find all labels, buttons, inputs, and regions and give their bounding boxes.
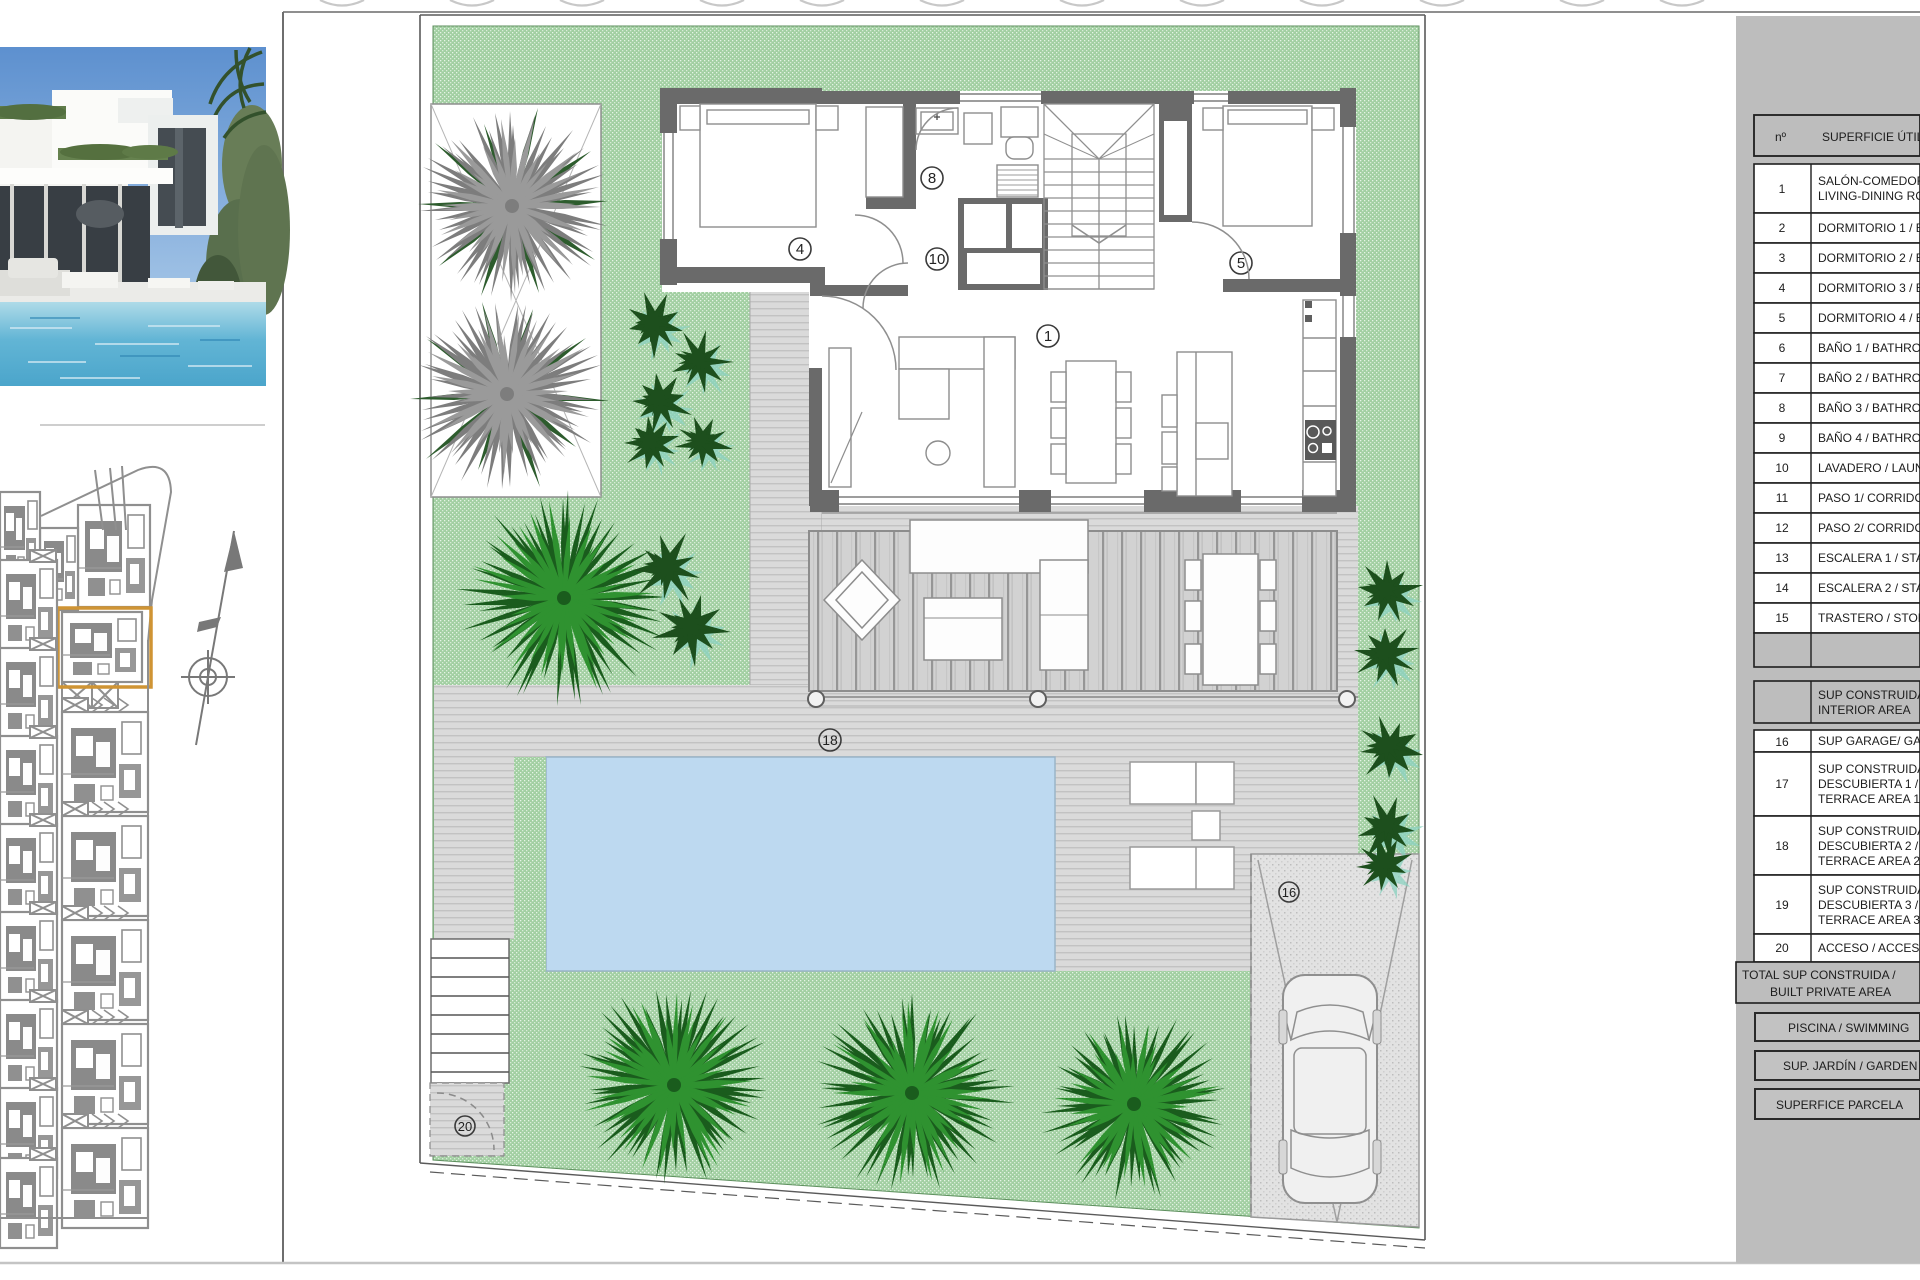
svg-text:12: 12 xyxy=(1775,521,1789,535)
svg-text:TOTAL SUP CONSTRUIDA /: TOTAL SUP CONSTRUIDA / xyxy=(1742,968,1896,982)
svg-text:13: 13 xyxy=(1775,551,1789,565)
svg-text:TERRACE AREA 3: TERRACE AREA 3 xyxy=(1818,913,1920,927)
svg-text:SUP. JARDÍN / GARDEN: SUP. JARDÍN / GARDEN xyxy=(1783,1058,1917,1073)
svg-text:PASO 2/ CORRIDOR 2: PASO 2/ CORRIDOR 2 xyxy=(1818,521,1920,535)
svg-text:ESCALERA 2 / STAIRS 2: ESCALERA 2 / STAIRS 2 xyxy=(1818,581,1920,595)
svg-text:18: 18 xyxy=(822,732,838,748)
svg-text:PISCINA / SWIMMING: PISCINA / SWIMMING xyxy=(1788,1021,1909,1035)
svg-text:DESCUBIERTA 3 / OPEN: DESCUBIERTA 3 / OPEN xyxy=(1818,898,1920,912)
svg-text:16: 16 xyxy=(1775,735,1789,749)
svg-text:BAÑO 1 / BATHROOM 1: BAÑO 1 / BATHROOM 1 xyxy=(1818,341,1920,355)
svg-text:TERRACE AREA 2: TERRACE AREA 2 xyxy=(1818,854,1920,868)
svg-text:16: 16 xyxy=(1282,885,1296,900)
svg-text:20: 20 xyxy=(1775,941,1789,955)
svg-text:DORMITORIO 1 / BEDROOM 1: DORMITORIO 1 / BEDROOM 1 xyxy=(1818,221,1920,235)
svg-text:TERRACE AREA 1: TERRACE AREA 1 xyxy=(1818,792,1920,806)
svg-text:14: 14 xyxy=(1775,581,1789,595)
svg-text:2: 2 xyxy=(1779,221,1786,235)
svg-text:17: 17 xyxy=(1775,777,1789,791)
svg-text:8: 8 xyxy=(1779,401,1786,415)
svg-text:PASO 1/ CORRIDOR 1: PASO 1/ CORRIDOR 1 xyxy=(1818,491,1920,505)
svg-text:ESCALERA 1 / STAIRS 1: ESCALERA 1 / STAIRS 1 xyxy=(1818,551,1920,565)
svg-text:5: 5 xyxy=(1237,255,1245,272)
svg-text:10: 10 xyxy=(1775,461,1789,475)
svg-text:LIVING-DINING ROOM: LIVING-DINING ROOM xyxy=(1818,189,1920,203)
svg-text:9: 9 xyxy=(1779,431,1786,445)
svg-text:18: 18 xyxy=(1775,839,1789,853)
svg-text:SUP CONSTRUIDA: SUP CONSTRUIDA xyxy=(1818,824,1920,838)
svg-text:DORMITORIO 4 / BEDROOM 4: DORMITORIO 4 / BEDROOM 4 xyxy=(1818,311,1920,325)
svg-text:19: 19 xyxy=(1775,898,1789,912)
svg-text:SUP CONSTRUIDA: SUP CONSTRUIDA xyxy=(1818,762,1920,776)
svg-text:7: 7 xyxy=(1779,371,1786,385)
svg-text:15: 15 xyxy=(1775,611,1789,625)
svg-text:1: 1 xyxy=(1044,328,1052,345)
svg-text:DESCUBIERTA 2 / OPEN: DESCUBIERTA 2 / OPEN xyxy=(1818,839,1920,853)
svg-text:8: 8 xyxy=(928,170,936,187)
svg-text:ACCESO / ACCESS: ACCESO / ACCESS xyxy=(1818,941,1920,955)
svg-text:SUPERFICIE ÚTIL: SUPERFICIE ÚTIL xyxy=(1822,129,1920,144)
svg-text:SUP GARAGE/ GARAGE AREA: SUP GARAGE/ GARAGE AREA xyxy=(1818,734,1920,748)
svg-text:INTERIOR AREA: INTERIOR AREA xyxy=(1818,703,1911,717)
svg-text:nº: nº xyxy=(1775,130,1787,144)
svg-text:SUP CONSTRUIDA INTERIOR /: SUP CONSTRUIDA INTERIOR / xyxy=(1818,688,1920,702)
svg-text:BAÑO 4 / BATHROOM 4: BAÑO 4 / BATHROOM 4 xyxy=(1818,431,1920,445)
svg-text:SUP CONSTRUIDA: SUP CONSTRUIDA xyxy=(1818,883,1920,897)
svg-text:DESCUBIERTA 1 / OPEN: DESCUBIERTA 1 / OPEN xyxy=(1818,777,1920,791)
svg-text:1: 1 xyxy=(1779,182,1786,196)
svg-text:LAVADERO / LAUNDRY: LAVADERO / LAUNDRY xyxy=(1818,461,1920,475)
svg-text:BAÑO 3 / BATHROOM 3: BAÑO 3 / BATHROOM 3 xyxy=(1818,401,1920,415)
svg-text:3: 3 xyxy=(1779,251,1786,265)
svg-text:6: 6 xyxy=(1779,341,1786,355)
svg-text:BAÑO 2 / BATHROOM 2: BAÑO 2 / BATHROOM 2 xyxy=(1818,371,1920,385)
svg-text:DORMITORIO 2 / BEDROOM 2: DORMITORIO 2 / BEDROOM 2 xyxy=(1818,251,1920,265)
svg-text:SALÓN-COMEDOR /: SALÓN-COMEDOR / xyxy=(1818,173,1920,188)
svg-text:SUPERFICE PARCELA: SUPERFICE PARCELA xyxy=(1776,1098,1903,1112)
svg-text:20: 20 xyxy=(458,1119,472,1134)
svg-text:10: 10 xyxy=(929,251,946,268)
svg-text:4: 4 xyxy=(1779,281,1786,295)
svg-text:TRASTERO / STORAGE: TRASTERO / STORAGE xyxy=(1818,611,1920,625)
svg-text:11: 11 xyxy=(1776,491,1789,505)
svg-text:5: 5 xyxy=(1779,311,1786,325)
svg-text:DORMITORIO 3 / BEDROOM 3: DORMITORIO 3 / BEDROOM 3 xyxy=(1818,281,1920,295)
svg-text:4: 4 xyxy=(796,241,804,258)
svg-text:BUILT PRIVATE AREA: BUILT PRIVATE AREA xyxy=(1770,985,1891,999)
